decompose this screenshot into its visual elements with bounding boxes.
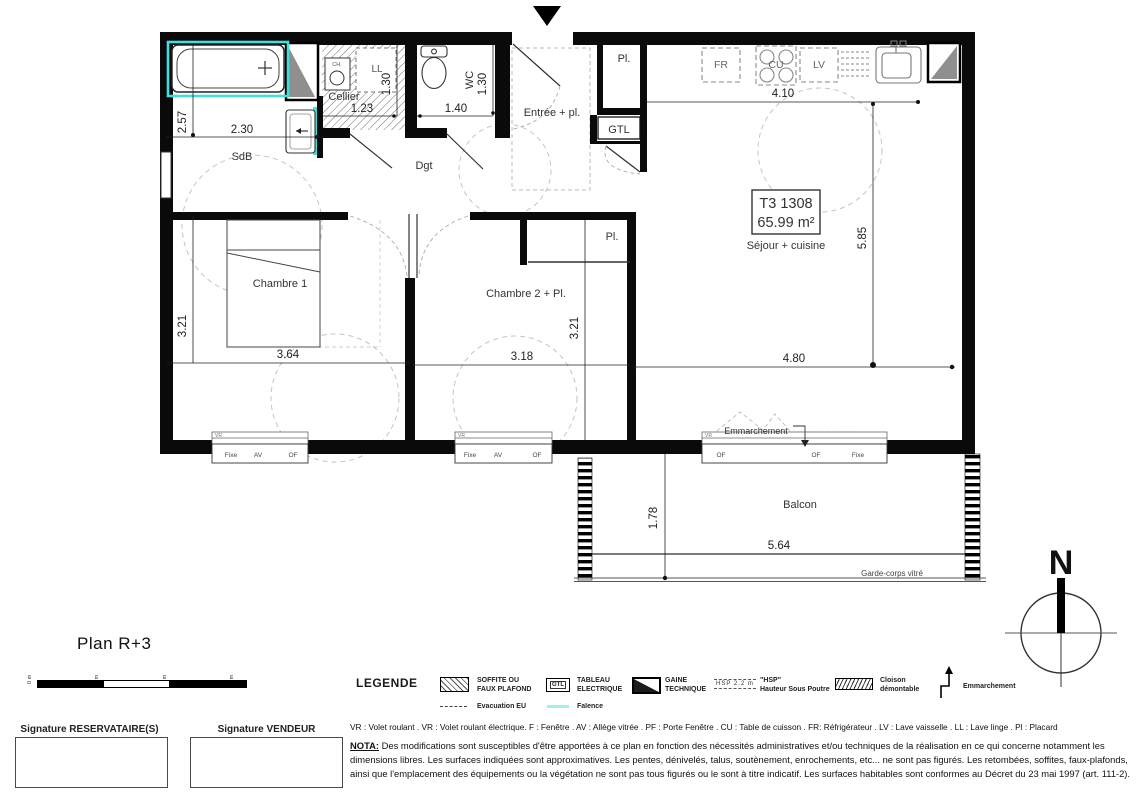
legend-label: Hauteur Sous Poutre (760, 685, 830, 694)
legend-label: FAUX PLAFOND (477, 685, 531, 694)
page-title: Plan R+3 (77, 634, 151, 654)
sdb-label: SdB (232, 151, 253, 163)
gaine-symbol-icon (632, 677, 661, 694)
gaine-technique-icon (286, 43, 318, 100)
entrance-arrow-icon (533, 6, 561, 26)
svg-text:4.80: 4.80 (783, 353, 805, 365)
legend-label: Evacuation EU (477, 702, 526, 711)
gtl-symbol-icon: GTL (546, 678, 570, 692)
legend-label: Cloison (880, 676, 919, 685)
washbasin-icon (286, 107, 317, 155)
lv-label: LV (813, 59, 825, 71)
svg-text:AV: AV (254, 452, 263, 459)
fr-label: FR (714, 59, 728, 71)
gtl-label: GTL (608, 124, 629, 136)
balcony (574, 454, 986, 582)
scale-tick: 0 m (27, 675, 33, 684)
cloison-strip (965, 454, 980, 580)
legend-label: SOFFITE OU (477, 676, 531, 685)
drainer-lines (841, 52, 871, 76)
legend-label: ELECTRIQUE (577, 685, 622, 694)
cloison-strip (578, 458, 592, 580)
sejour-label: Séjour + cuisine (747, 240, 826, 252)
window-chambre2: VR Fixe AV OF (455, 432, 552, 463)
nota-heading: NOTA: (350, 740, 379, 751)
unit-area: 65.99 m² (757, 215, 814, 231)
garde-corps-label: Garde-corps vitré (861, 569, 923, 578)
scale-segment (37, 680, 103, 688)
hsp-symbol-icon: HSP 2.2 m (714, 679, 756, 689)
svg-text:OF: OF (811, 452, 820, 459)
svg-text:1.30: 1.30 (477, 73, 489, 95)
balcon-label: Balcon (783, 499, 817, 511)
ch-label: CH. (332, 62, 342, 68)
svg-text:1.40: 1.40 (445, 103, 467, 115)
legend-label: "HSP" (760, 676, 830, 685)
window-chambre1: VR Fixe AV OF (212, 432, 308, 463)
signature-reservataire-box[interactable] (15, 737, 168, 788)
pl-label: Pl. (618, 53, 631, 65)
vr-tag: VR (215, 433, 222, 439)
svg-text:Fixe: Fixe (225, 452, 238, 459)
svg-text:Fixe: Fixe (464, 452, 477, 459)
svg-text:3.21: 3.21 (569, 317, 581, 339)
svg-text:1.78: 1.78 (648, 507, 660, 529)
svg-text:OF: OF (288, 452, 297, 459)
cu-label: CU (768, 59, 783, 71)
ll-label: LL (371, 64, 383, 75)
floor-plan-page: { "page": { "title": "Plan R+3" }, "plan… (0, 0, 1140, 800)
svg-text:1.23: 1.23 (351, 103, 373, 115)
entree-placard-dashed (512, 48, 590, 190)
cellier-label: Cellier (328, 91, 360, 103)
gaine-technique-icon (928, 43, 960, 82)
abbreviations-line: VR : Volet roulant . VR : Volet roulant … (350, 722, 1058, 732)
svg-text:5.64: 5.64 (768, 540, 791, 552)
wc-label: WC (464, 71, 476, 89)
bathtub-icon (168, 42, 288, 96)
pl2-label: Pl. (606, 231, 619, 243)
svg-text:3.18: 3.18 (511, 351, 533, 363)
unit-lot: T3 1308 (759, 196, 812, 212)
chambre2-label: Chambre 2 + Pl. (486, 288, 566, 300)
step-arrow-icon (938, 666, 960, 700)
vr-tag: VR (705, 433, 712, 439)
window-sejour: VR OF OF Fixe Emmarchement (702, 412, 887, 463)
svg-text:5.85: 5.85 (857, 227, 869, 249)
chambre1-label: Chambre 1 (253, 278, 307, 290)
nota-paragraph: NOTA: Des modifications sont susceptible… (350, 739, 1140, 781)
cloison-symbol-icon (835, 678, 873, 690)
svg-text:OF: OF (532, 452, 541, 459)
svg-text:3.64: 3.64 (277, 349, 300, 361)
legend-label: démontable (880, 685, 919, 694)
nota-body: Des modifications sont susceptibles d'êt… (350, 740, 1130, 779)
gtl-symbol-text: GTL (550, 681, 566, 689)
svg-text:Fixe: Fixe (852, 452, 865, 459)
sink-icon (876, 41, 921, 83)
legend-label: Faïence (577, 702, 603, 711)
legend-label: GAINE (665, 676, 706, 685)
north-compass-icon: N (999, 540, 1123, 690)
svg-text:OF: OF (716, 452, 725, 459)
signature-vendeur-label: Signature VENDEUR (190, 724, 343, 735)
soffite-hatch-icon (440, 677, 469, 692)
legend-label: TABLEAU (577, 676, 622, 685)
floor-plan-drawing: VR Fixe AV OF VR Fixe AV OF VR OF OF Fix… (0, 0, 1140, 620)
svg-text:3.21: 3.21 (177, 315, 189, 337)
signature-vendeur-box[interactable] (190, 737, 343, 788)
radiator-icon (161, 152, 171, 198)
svg-text:4.10: 4.10 (772, 88, 794, 100)
vr-tag: VR (458, 433, 465, 439)
entree-label: Entrée + pl. (524, 107, 581, 119)
svg-text:AV: AV (494, 452, 503, 459)
emmarchement-label: Emmarchement (724, 426, 788, 436)
kitchen-appliances (702, 41, 921, 85)
toilet-icon (421, 46, 447, 89)
dgt-label: Dgt (415, 160, 432, 172)
scale-segment (103, 680, 170, 688)
faience-line-icon (547, 705, 569, 708)
svg-text:1.30: 1.30 (381, 73, 393, 95)
evacuation-line-icon (440, 706, 467, 707)
unit-info-box: T3 1308 65.99 m² (752, 190, 820, 234)
north-label: N (1049, 544, 1074, 582)
legend-label: TECHNIQUE (665, 685, 706, 694)
scale-segment (170, 680, 247, 688)
svg-text:2.30: 2.30 (231, 124, 253, 136)
svg-text:2.57: 2.57 (177, 111, 189, 133)
gtl-box: GTL (598, 117, 640, 139)
signature-reservataire-label: Signature RESERVATAIRE(S) (13, 724, 166, 735)
legend-heading: LEGENDE (356, 676, 418, 690)
